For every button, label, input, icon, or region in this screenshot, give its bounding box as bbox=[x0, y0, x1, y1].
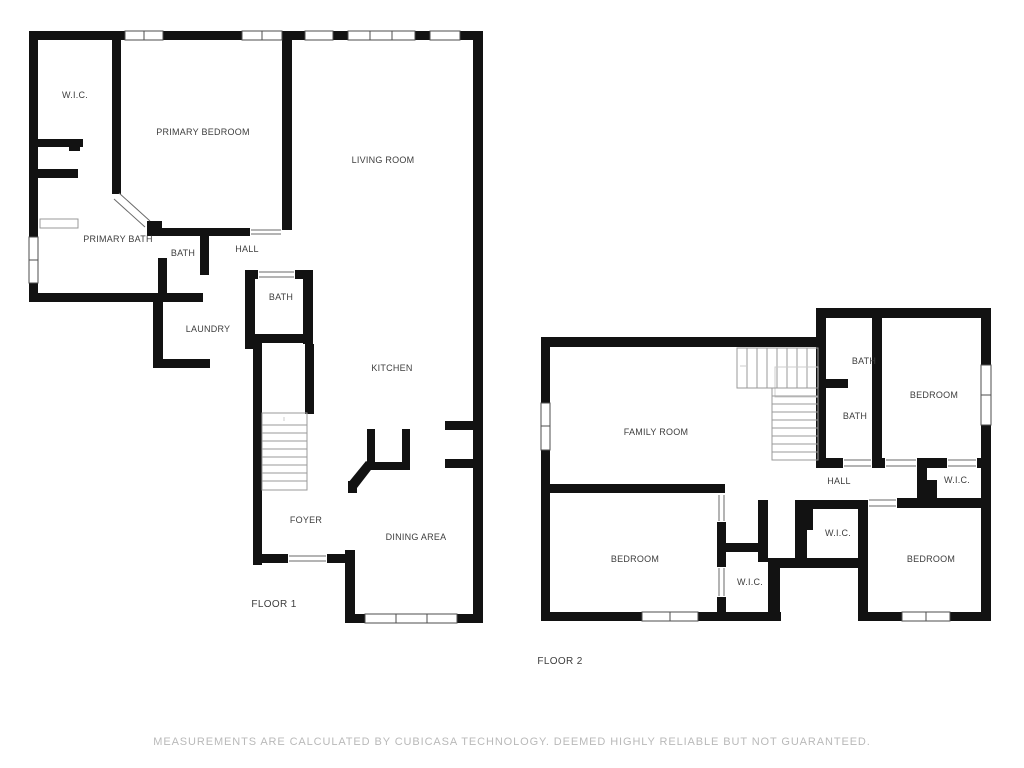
window bbox=[981, 365, 991, 425]
wall-segment bbox=[897, 498, 990, 508]
disclaimer-text: MEASUREMENTS ARE CALCULATED BY CUBICASA … bbox=[153, 736, 870, 748]
window bbox=[430, 31, 460, 40]
room-label-bedroom-bottom-right: BEDROOM bbox=[907, 554, 955, 564]
wall-segment bbox=[153, 359, 210, 368]
room-label-hall: HALL bbox=[827, 476, 851, 486]
wall-segment bbox=[718, 543, 758, 552]
wall-segment bbox=[541, 337, 550, 621]
wall-segment bbox=[245, 334, 313, 343]
wall-segment bbox=[813, 500, 860, 509]
room-label-bath: BATH bbox=[171, 248, 195, 258]
door bbox=[114, 199, 145, 227]
wall-segment bbox=[282, 31, 292, 230]
wall-segment bbox=[303, 270, 313, 344]
window bbox=[242, 31, 282, 40]
floor2-plan: FAMILY ROOM BATH BATH BEDROOM HALL W.I.C… bbox=[537, 308, 991, 667]
wall-segment bbox=[29, 293, 203, 302]
wall-segment bbox=[445, 459, 473, 468]
room-label-wic-right: W.I.C. bbox=[944, 475, 970, 485]
wall-segment bbox=[858, 500, 868, 621]
room-label-family-room: FAMILY ROOM bbox=[624, 427, 688, 437]
room-label-bath-upper: BATH bbox=[852, 356, 876, 366]
wall-segment bbox=[917, 458, 947, 468]
room-label-dining-area: DINING AREA bbox=[386, 532, 447, 542]
wall-segment bbox=[29, 169, 78, 178]
wall-segment bbox=[445, 421, 473, 430]
wall-segment bbox=[825, 458, 843, 468]
wall-segment bbox=[777, 558, 868, 568]
wall-segment bbox=[200, 228, 209, 275]
wall-segment bbox=[758, 500, 768, 562]
wall-segment bbox=[917, 480, 937, 498]
floor2-title: FLOOR 2 bbox=[537, 656, 582, 667]
wall-segment bbox=[367, 429, 375, 467]
room-label-wic: W.I.C. bbox=[62, 90, 88, 100]
floor1-title: FLOOR 1 bbox=[251, 599, 296, 610]
wall-segment bbox=[795, 500, 813, 530]
wall-segment bbox=[348, 481, 357, 493]
wall-segment bbox=[69, 143, 80, 151]
window bbox=[305, 31, 333, 40]
window bbox=[642, 612, 698, 621]
room-label-hall: HALL bbox=[235, 244, 259, 254]
wall-segment bbox=[872, 458, 885, 468]
wall-segment bbox=[345, 550, 355, 623]
room-label-living-room: LIVING ROOM bbox=[352, 155, 415, 165]
wall-segment bbox=[816, 308, 991, 318]
room-label-bath-2: BATH bbox=[269, 292, 293, 302]
wall-segment bbox=[872, 317, 882, 458]
wall-segment bbox=[305, 344, 314, 414]
staircase bbox=[737, 348, 818, 460]
wall-segment bbox=[541, 484, 725, 493]
wall-segment bbox=[112, 185, 121, 194]
window bbox=[348, 31, 415, 40]
room-label-bath-lower: BATH bbox=[843, 411, 867, 421]
room-label-wic-middle: W.I.C. bbox=[825, 528, 851, 538]
floorplan-image: W.I.C. PRIMARY BEDROOM LIVING ROOM PRIMA… bbox=[0, 0, 1024, 768]
window bbox=[541, 403, 550, 450]
floor1-plan: W.I.C. PRIMARY BEDROOM LIVING ROOM PRIMA… bbox=[29, 31, 483, 623]
wall-segment bbox=[795, 530, 807, 558]
room-label-bedroom-bottom-left: BEDROOM bbox=[611, 554, 659, 564]
wall-segment bbox=[473, 31, 483, 623]
room-label-laundry: LAUNDRY bbox=[186, 324, 231, 334]
staircase bbox=[262, 413, 307, 490]
wall-segment bbox=[253, 554, 288, 563]
wall-segment bbox=[826, 379, 848, 388]
room-label-kitchen: KITCHEN bbox=[371, 363, 412, 373]
room-label-foyer: FOYER bbox=[290, 515, 323, 525]
window bbox=[365, 614, 457, 623]
window bbox=[902, 612, 950, 621]
room-label-primary-bedroom: PRIMARY BEDROOM bbox=[156, 127, 249, 137]
room-label-wic-bottom: W.I.C. bbox=[737, 577, 763, 587]
wall-segment bbox=[153, 302, 163, 368]
wall-segment bbox=[541, 337, 826, 347]
window bbox=[125, 31, 163, 40]
room-label-bedroom-top-right: BEDROOM bbox=[910, 390, 958, 400]
wall-segment bbox=[112, 31, 121, 191]
floorplan-svg: W.I.C. PRIMARY BEDROOM LIVING ROOM PRIMA… bbox=[0, 0, 1024, 768]
wall-segment bbox=[977, 458, 990, 468]
door bbox=[119, 193, 150, 221]
wall-segment bbox=[253, 343, 262, 565]
wall-segment bbox=[717, 597, 726, 621]
counter bbox=[40, 219, 78, 228]
wall-segment bbox=[158, 258, 167, 302]
room-label-primary-bath: PRIMARY BATH bbox=[83, 234, 153, 244]
window bbox=[29, 237, 38, 283]
